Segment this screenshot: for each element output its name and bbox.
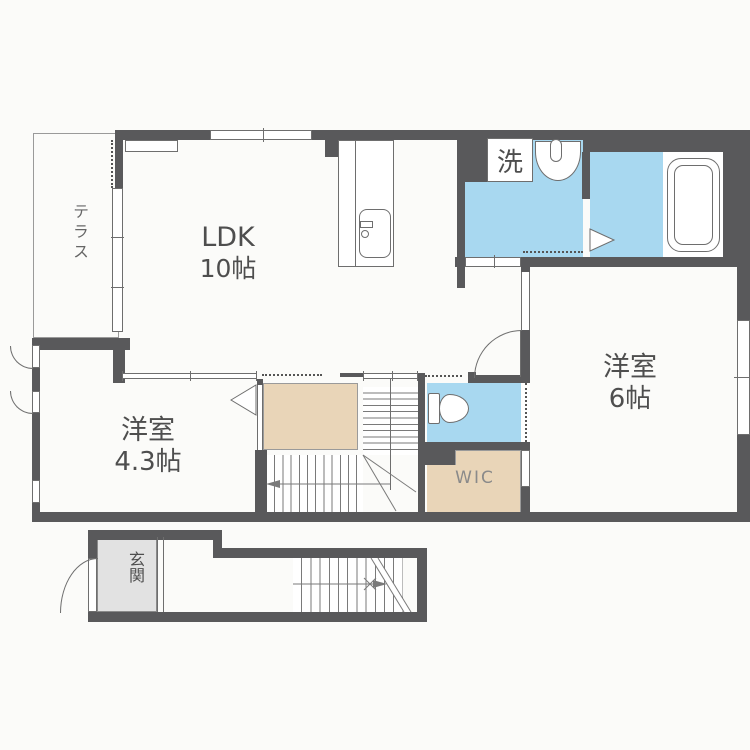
dashed-opening <box>523 251 583 253</box>
laundry-label: 洗 <box>497 142 523 179</box>
wall <box>457 182 465 288</box>
wall <box>255 450 267 512</box>
ldk-name: LDK <box>201 222 255 253</box>
western-room-small-label: 洋室 4.3帖 <box>83 415 213 478</box>
western-room-large-label: 洋室 6帖 <box>565 352 695 415</box>
terrace-label: テラス <box>67 203 91 263</box>
door-opening <box>521 272 530 330</box>
dashed-partition <box>525 383 527 442</box>
washbasin-faucet-icon <box>550 139 562 162</box>
window-tick <box>734 377 750 378</box>
wall <box>340 373 363 377</box>
room-name: 洋室 <box>121 415 175 446</box>
storage-door-leaf <box>32 391 40 413</box>
bathroom-floor <box>590 152 663 257</box>
window-tick <box>111 237 124 238</box>
ldk-label: LDK 10帖 <box>163 222 293 284</box>
storage-door-leaf <box>32 345 40 368</box>
room-size: 6帖 <box>609 384 652 414</box>
faucet-knob-icon <box>361 230 369 238</box>
stairs-center-line <box>390 379 391 490</box>
wall <box>521 330 530 383</box>
wall <box>32 503 40 512</box>
partition-tick <box>190 371 191 381</box>
wall <box>312 130 583 140</box>
laundry-pan: 洗 <box>487 138 533 182</box>
window-tick <box>263 128 264 142</box>
toilet-dashed-door <box>425 375 462 377</box>
wall <box>213 548 425 558</box>
wall <box>88 612 427 622</box>
railing-tick <box>392 371 393 381</box>
stairs-lower-flight <box>267 455 363 512</box>
kitchen-counter-divider <box>355 140 356 267</box>
window-tick <box>111 287 124 288</box>
entry-step-line <box>157 537 158 612</box>
wall <box>521 442 530 450</box>
door-tick <box>494 255 495 268</box>
counter-shelf <box>125 140 178 152</box>
window <box>32 480 40 503</box>
wall <box>115 130 210 140</box>
wall <box>583 130 750 152</box>
wall <box>32 338 130 350</box>
wall <box>737 267 750 320</box>
wall <box>457 133 487 182</box>
entry-step-line <box>163 537 164 612</box>
wall <box>115 140 123 188</box>
ldk-size: 10帖 <box>200 254 257 283</box>
closet-door-triangle <box>231 385 256 415</box>
room-name: 洋室 <box>603 352 657 383</box>
wall <box>88 530 213 540</box>
partition-tick <box>122 371 123 381</box>
outside-stairs <box>293 558 403 612</box>
wall <box>32 512 750 522</box>
dashed-opening <box>262 374 322 376</box>
window <box>210 130 312 140</box>
dashed-opening <box>111 140 113 188</box>
wic-door <box>521 450 530 487</box>
terrace-window <box>112 188 123 332</box>
closet-opening <box>257 385 263 450</box>
bathtub-inner <box>674 165 713 245</box>
partition-tick <box>256 371 257 381</box>
wall <box>582 152 590 199</box>
room-size: 4.3帖 <box>114 447 181 477</box>
railing-tick <box>363 371 364 381</box>
closet-floor <box>263 383 358 450</box>
floor-plan: 洗 テラス <box>0 0 750 750</box>
storage-door-swing <box>10 346 33 369</box>
wall <box>32 368 40 391</box>
washroom-sliding-door <box>465 257 521 267</box>
storage-door-swing <box>10 391 33 414</box>
wall <box>521 257 750 267</box>
wall <box>417 548 427 622</box>
bedroom-door-swing <box>474 330 522 378</box>
railing-tick <box>417 371 418 381</box>
wall <box>88 540 97 558</box>
front-door-swing <box>60 558 98 613</box>
wall <box>737 435 750 512</box>
entrance-label: 玄関 <box>123 551 147 583</box>
wall <box>455 257 465 267</box>
wall <box>32 413 40 480</box>
faucet-icon <box>360 221 373 228</box>
wall <box>418 442 455 465</box>
bedroom-door-leaf <box>520 330 521 377</box>
wall <box>521 487 530 513</box>
wic-label: WIC <box>440 468 510 488</box>
wall <box>723 152 750 267</box>
